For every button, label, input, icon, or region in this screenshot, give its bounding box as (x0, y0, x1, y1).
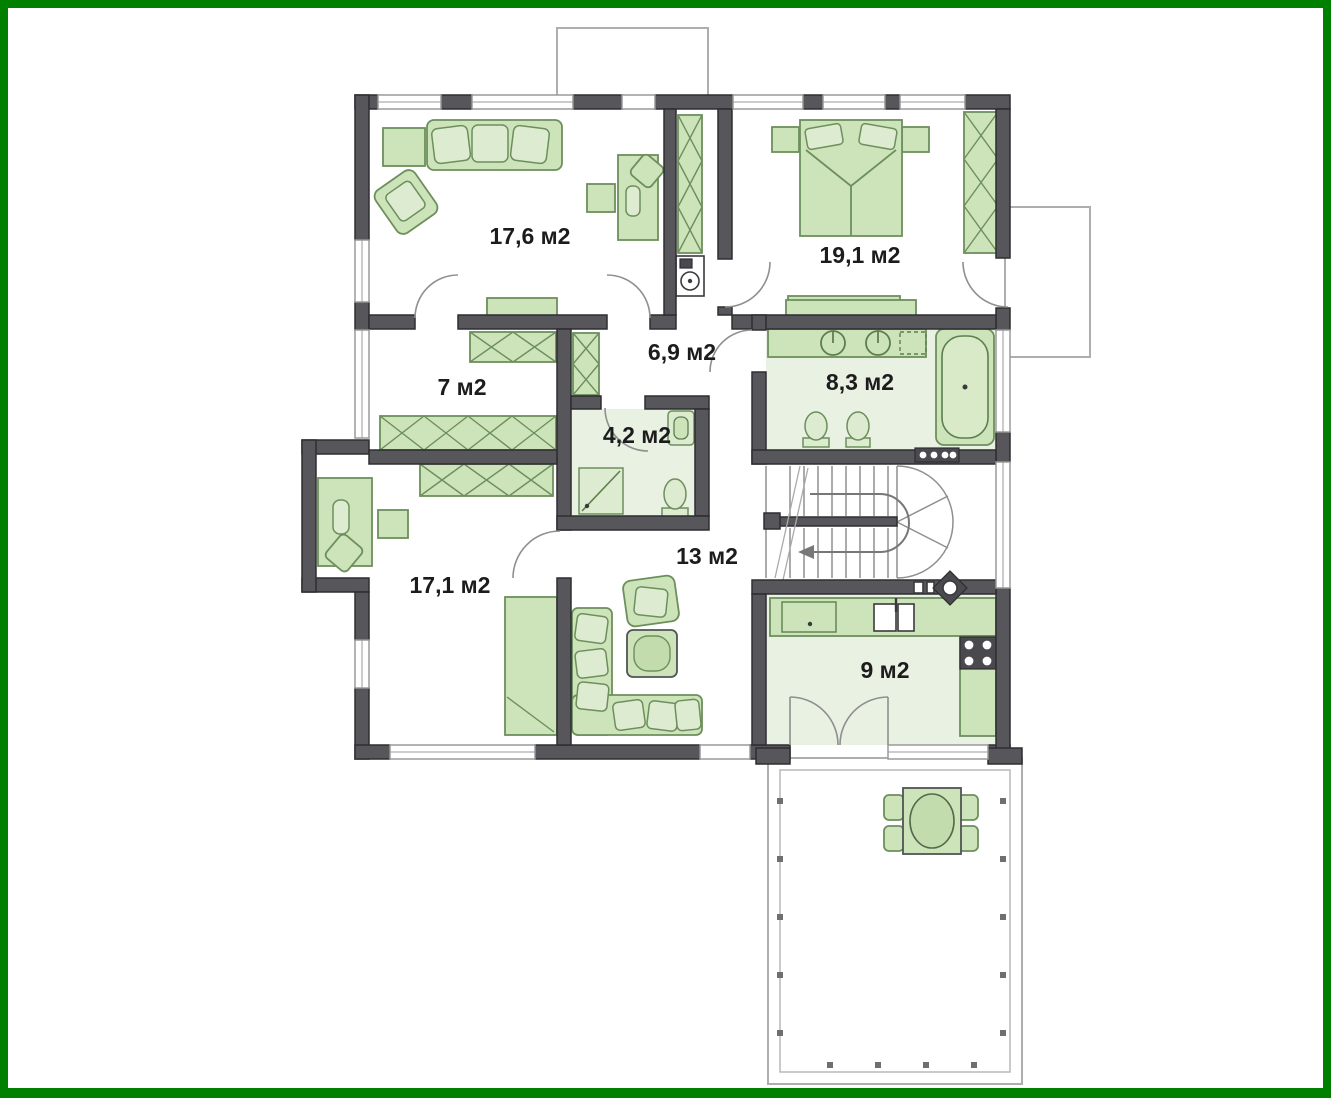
sitting-room-furniture (572, 575, 702, 735)
small-sink (668, 411, 694, 445)
study-cabinet (505, 597, 557, 735)
stair-rail (770, 517, 897, 526)
study-furniture (318, 464, 557, 735)
room-label-wardrobe: 7 м2 (438, 374, 487, 400)
bathtub (936, 329, 994, 445)
side-table (383, 128, 425, 166)
double-bed (800, 120, 902, 236)
door-bathroom (710, 330, 752, 372)
study-table (378, 510, 408, 538)
door-bedroom (725, 262, 770, 307)
coffee-table (627, 630, 677, 677)
lounge-armchair (622, 575, 680, 628)
vent-grille (915, 448, 959, 462)
boiler-closet (676, 256, 704, 296)
wall-shelf (487, 298, 557, 316)
closet-row (380, 416, 556, 450)
bidet (846, 412, 870, 447)
stair-newel (764, 513, 780, 529)
floor-plan: 17,6 м2 19,1 м2 6,9 м2 7 м2 8,3 м2 4,2 м… (0, 0, 1331, 1098)
stair-arrow-head (798, 545, 814, 559)
closet-top (470, 332, 556, 362)
door-living-to-wardrobe (415, 275, 458, 318)
hall-wardrobe (678, 115, 702, 253)
room-label-hallway: 6,9 м2 (648, 339, 716, 365)
door-study (513, 531, 560, 578)
terrace (768, 758, 1022, 1084)
door-balcony (963, 262, 1008, 307)
stool (587, 184, 615, 212)
nightstand-left (772, 127, 799, 152)
room-label-bathroom: 8,3 м2 (826, 369, 894, 395)
staircase (764, 466, 953, 580)
wc-toilet (662, 479, 688, 517)
roof-dormer-outline (557, 28, 708, 98)
nightstand-right (902, 127, 929, 152)
room-label-shower: 4,2 м2 (603, 422, 671, 448)
balcony-outline (1005, 207, 1090, 357)
hallway-furniture (676, 115, 704, 296)
shower (579, 468, 623, 514)
study-dresser (420, 464, 553, 496)
stove (960, 637, 996, 669)
bedroom-wardrobe (964, 112, 998, 253)
door-living-to-hall (607, 275, 650, 318)
room-label-study: 17,1 м2 (410, 572, 491, 598)
room-label-bedroom: 19,1 м2 (820, 242, 901, 268)
duct-1 (914, 582, 923, 593)
room-label-living: 17,6 м2 (490, 223, 571, 249)
linen-closet (573, 333, 599, 395)
sofa (427, 120, 562, 170)
vanity-double-sink (768, 329, 926, 357)
toilet (803, 412, 829, 447)
study-desk (318, 478, 372, 573)
room-label-sitting: 13 м2 (676, 543, 738, 569)
desk (618, 153, 665, 240)
living-room-furniture (371, 120, 665, 316)
bedroom-furniture (772, 112, 998, 316)
green-frame: 17,6 м2 19,1 м2 6,9 м2 7 м2 8,3 м2 4,2 м… (0, 0, 1331, 1098)
armchair (371, 167, 440, 237)
room-label-kitchen: 9 м2 (861, 657, 910, 683)
